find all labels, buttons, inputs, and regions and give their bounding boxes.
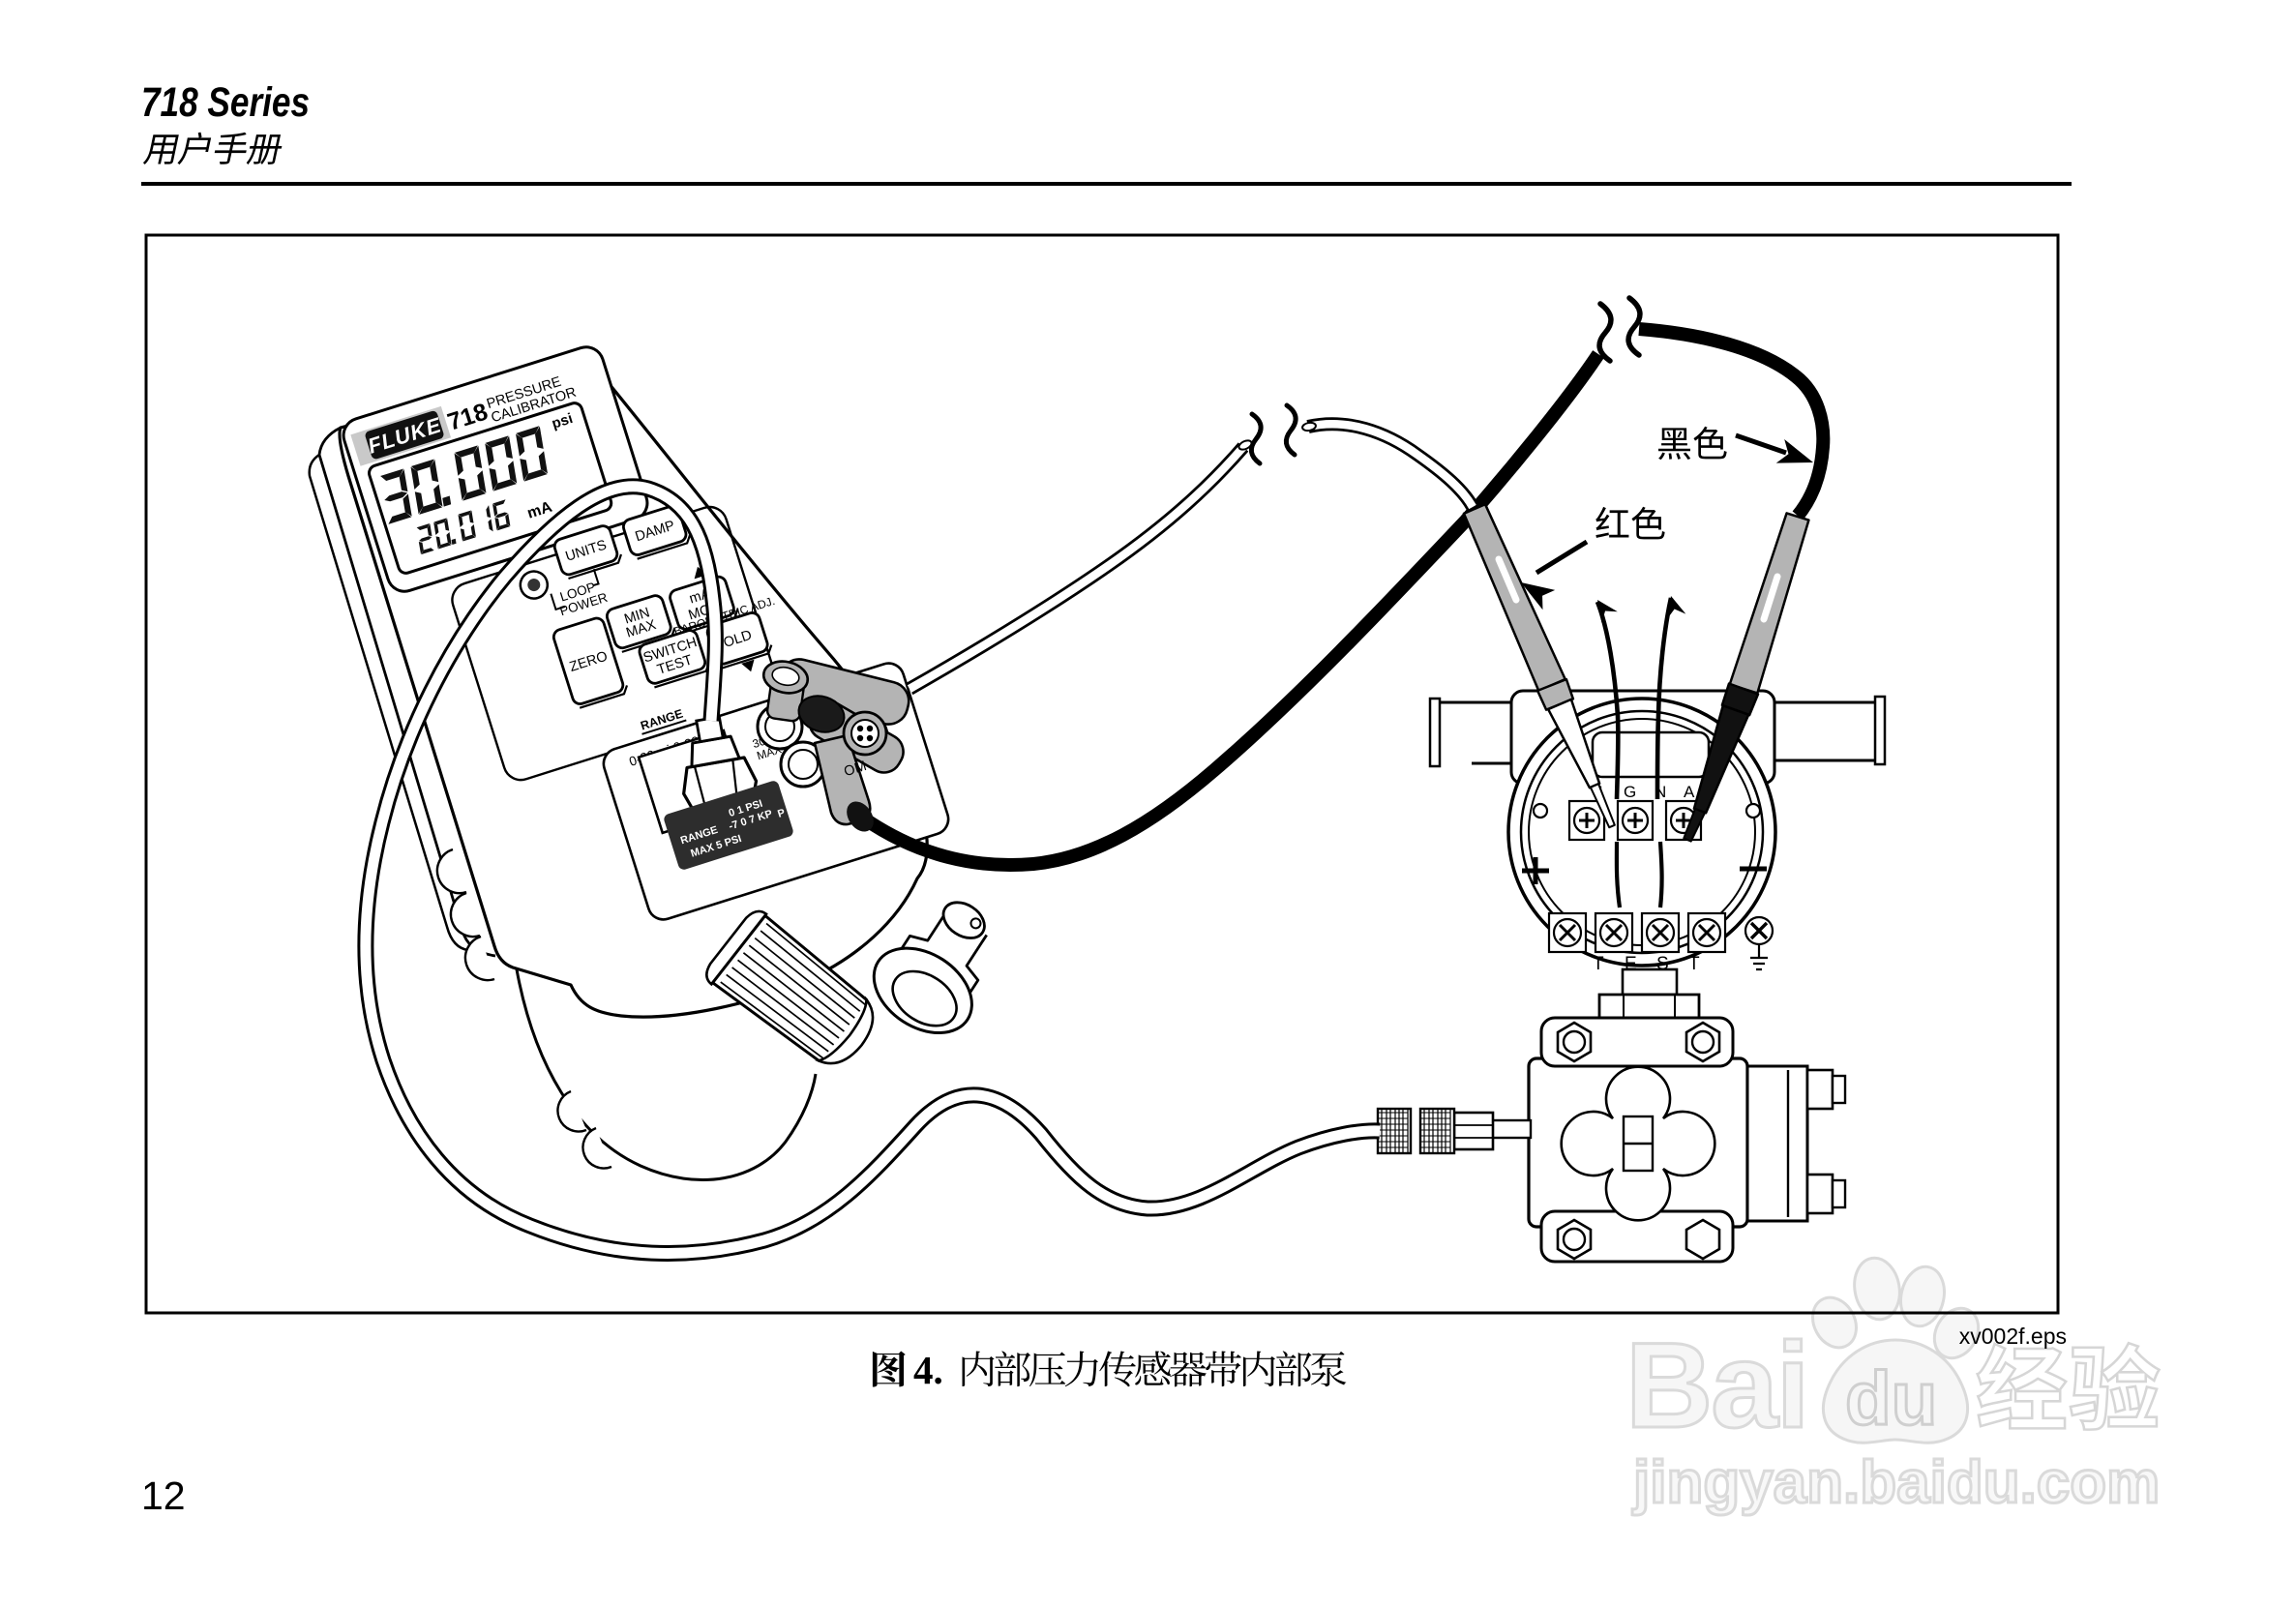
svg-text:4.: 4. <box>913 1348 943 1392</box>
svg-text:A: A <box>1684 783 1695 801</box>
svg-text:Bai: Bai <box>1625 1319 1808 1453</box>
svg-text:xv002f.eps: xv002f.eps <box>1959 1324 2067 1349</box>
svg-text:G: G <box>1624 783 1636 801</box>
svg-text:T: T <box>1593 954 1604 974</box>
svg-text:jingyan.baidu.com: jingyan.baidu.com <box>1632 1449 2160 1516</box>
svg-text:T: T <box>1688 954 1700 974</box>
svg-text:12: 12 <box>141 1473 186 1518</box>
svg-text:du: du <box>1845 1355 1937 1441</box>
svg-text:718 Series: 718 Series <box>141 79 310 126</box>
